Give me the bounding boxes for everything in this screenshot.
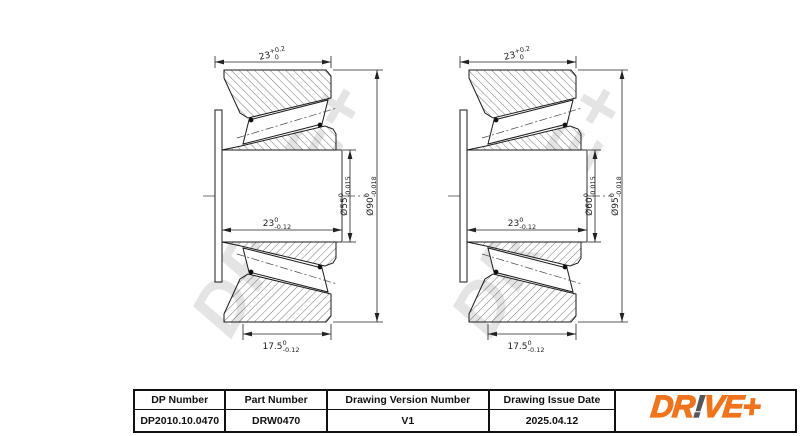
logo-plus: +: [741, 391, 761, 422]
part-number-value: DRW0470: [226, 410, 325, 431]
driveplus-logo: DR!VE+: [614, 391, 796, 422]
dim-outer-ring-width: 17.50-0.12: [507, 339, 544, 354]
logo-part-dr: DR: [650, 391, 696, 422]
title-block-col-issue-date: Drawing Issue Date 2025.04.12: [490, 391, 616, 431]
dim-outer-ring-width: 17.50-0.12: [262, 339, 299, 354]
dim-outer-diameter: Ø900-0.018: [363, 176, 378, 216]
drawing-version-header: Drawing Version Number: [328, 391, 488, 410]
title-block-col-logo: DR!VE+: [616, 391, 795, 431]
dim-outer-diameter: Ø950-0.018: [608, 176, 623, 216]
dp-number-value: DP2010.10.0470: [135, 410, 224, 431]
part-number-header: Part Number: [226, 391, 325, 410]
title-block-col-part-number: Part Number DRW0470: [226, 391, 327, 431]
title-block-col-dp-number: DP Number DP2010.10.0470: [135, 391, 226, 431]
issue-date-value: 2025.04.12: [490, 410, 614, 431]
title-block-col-drawing-version: Drawing Version Number V1: [328, 391, 490, 431]
dp-number-header: DP Number: [135, 391, 224, 410]
technical-drawing-page: { "drawing": { "watermark": "DR!VE+", "b…: [0, 0, 800, 436]
bearing-drawing-canvas: DR!VE+ DR!VE+ 23+0.20 Ø550-0.015 Ø900-0.…: [0, 0, 800, 389]
logo-part-ve: VE: [702, 391, 745, 422]
drawing-version-value: V1: [328, 410, 488, 431]
issue-date-header: Drawing Issue Date: [490, 391, 614, 410]
title-block-table: DP Number DP2010.10.0470 Part Number DRW…: [133, 389, 797, 433]
